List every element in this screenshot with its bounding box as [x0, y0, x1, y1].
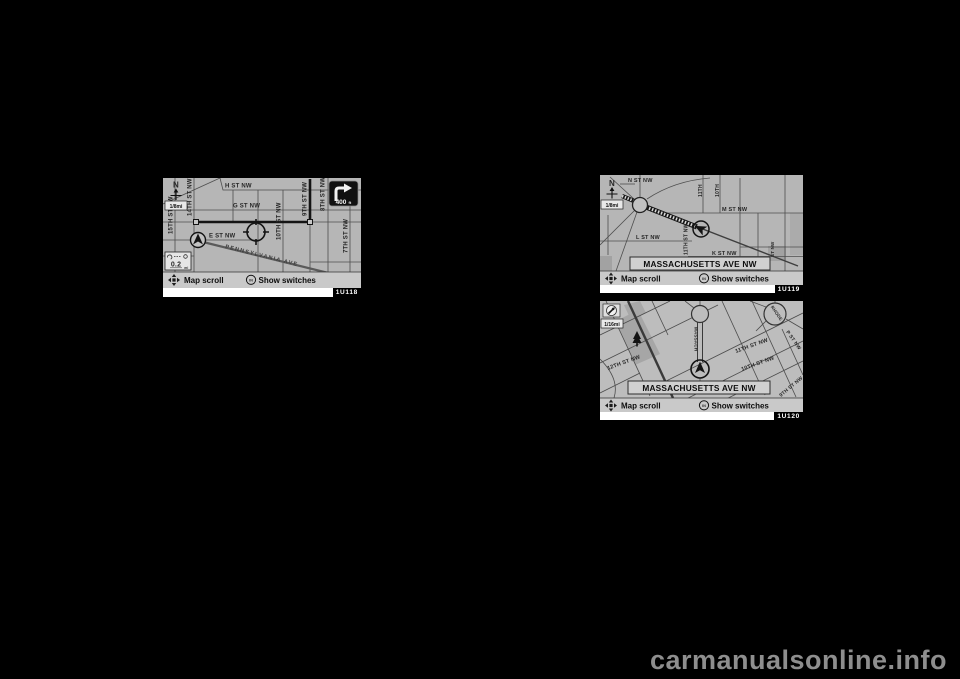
map-scale-badge: 1/8mi — [165, 201, 187, 210]
street-label: ST NW — [770, 241, 775, 257]
traffic-circle — [692, 306, 709, 323]
map-scroll-label[interactable]: Map scroll — [621, 275, 661, 284]
street-label: L ST NW — [636, 235, 661, 241]
street-label: M ST NW — [722, 207, 748, 213]
current-street-name: MASSACHUSETTS AVE NW — [642, 383, 755, 393]
show-switches-label[interactable]: Show switches — [712, 275, 770, 284]
map-canvas-2[interactable]: N ST NW M ST NW L ST NW K ST NW 11TH 10T… — [600, 175, 803, 285]
turn-distance: 400 — [336, 199, 347, 206]
scale-badge-label: 1/8mi — [170, 204, 183, 210]
scale-zoom-control[interactable]: 0.2 mi — [165, 252, 191, 270]
vehicle-position-icon — [191, 233, 206, 248]
street-label: 9TH ST NW — [303, 182, 309, 216]
scale-badge-label: 1/16mi — [604, 322, 620, 328]
street-name-banner: MASSACHUSETTS AVE NW — [630, 257, 770, 270]
scale-badge-label: 1/8mi — [606, 203, 619, 209]
street-label: 10TH — [715, 184, 721, 197]
figure-caption-strip: 1U118 — [163, 288, 361, 297]
figure-caption-strip: 1U120 — [600, 412, 803, 420]
street-name-banner: MASSACHUSETTS AVE NW — [628, 381, 770, 394]
map-scale-badge: 1/16mi — [601, 319, 623, 328]
street-label: K ST NW — [712, 251, 737, 257]
map-canvas-1[interactable]: H ST NW G ST NW E ST NW PENNSYLVANIA AVE… — [163, 178, 361, 288]
street-label: G ST NW — [233, 204, 260, 210]
nav-screenshot-route-overview: H ST NW G ST NW E ST NW PENNSYLVANIA AVE… — [163, 178, 361, 297]
street-label: 8TH ST NW — [321, 178, 327, 211]
figure-id: 1U118 — [333, 288, 361, 297]
enter-key-label: IN — [702, 277, 706, 281]
street-label: H ST NW — [225, 184, 252, 190]
status-bar: Map scroll IN Show switches — [600, 271, 803, 285]
enter-key-label: IN — [702, 404, 706, 408]
map-canvas-3[interactable]: 12TH ST NW 11TH ST NW 10TH ST NW 9TH ST … — [600, 301, 803, 412]
map-scale-badge: 1/8mi — [601, 200, 623, 209]
scale-unit: mi — [184, 266, 188, 270]
street-label: 10TH ST NW — [277, 202, 283, 240]
enter-key-label: IN — [249, 278, 253, 282]
figure-id: 1U120 — [774, 412, 803, 420]
status-bar: Map scroll IN Show switches — [600, 398, 803, 412]
status-bar: Map scroll IN Show switches — [163, 272, 361, 288]
map-scroll-label[interactable]: Map scroll — [184, 276, 224, 285]
current-street-name: MASSACHUSETTS AVE NW — [643, 259, 756, 269]
scale-value: 0.2 — [171, 262, 181, 269]
figure-caption-strip: 1U119 — [600, 285, 803, 293]
street-label: 11TH ST NW — [684, 223, 690, 255]
street-label: 14TH ST NW — [188, 178, 194, 216]
heading-compass-icon — [603, 304, 620, 317]
turn-info-badge: 400 ft — [329, 181, 358, 206]
street-label: MASSACH — [694, 327, 699, 351]
street-label: 11TH — [698, 184, 704, 197]
page-background: H ST NW G ST NW E ST NW PENNSYLVANIA AVE… — [0, 0, 960, 679]
site-watermark: carmanualsonline.info — [650, 645, 947, 676]
nav-screenshot-mass-ave-heading-up: 12TH ST NW 11TH ST NW 10TH ST NW 9TH ST … — [600, 301, 803, 420]
street-label: E ST NW — [209, 234, 236, 240]
street-label: 7TH ST NW — [344, 219, 350, 253]
north-letter: N — [609, 179, 615, 188]
show-switches-label[interactable]: Show switches — [712, 402, 770, 411]
figure-id: 1U119 — [775, 285, 803, 293]
show-switches-label[interactable]: Show switches — [259, 276, 317, 285]
map-scroll-label[interactable]: Map scroll — [621, 402, 661, 411]
street-label: N ST NW — [628, 178, 653, 184]
city-block — [600, 256, 612, 271]
north-letter: N — [173, 181, 179, 190]
city-block — [790, 213, 803, 255]
traffic-circle — [633, 198, 648, 213]
nav-screenshot-mass-ave-north-up: N ST NW M ST NW L ST NW K ST NW 11TH 10T… — [600, 175, 803, 293]
